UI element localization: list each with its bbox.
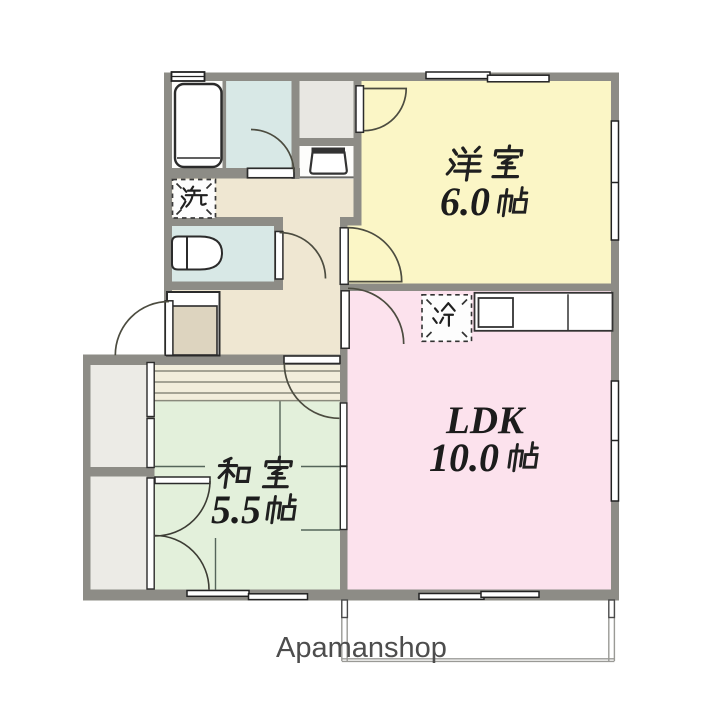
svg-text:Apamanshop: Apamanshop bbox=[276, 632, 447, 664]
svg-text:6.0: 6.0 bbox=[440, 179, 490, 224]
svg-text:10.0: 10.0 bbox=[429, 435, 499, 480]
svg-text:5.5: 5.5 bbox=[211, 487, 261, 532]
